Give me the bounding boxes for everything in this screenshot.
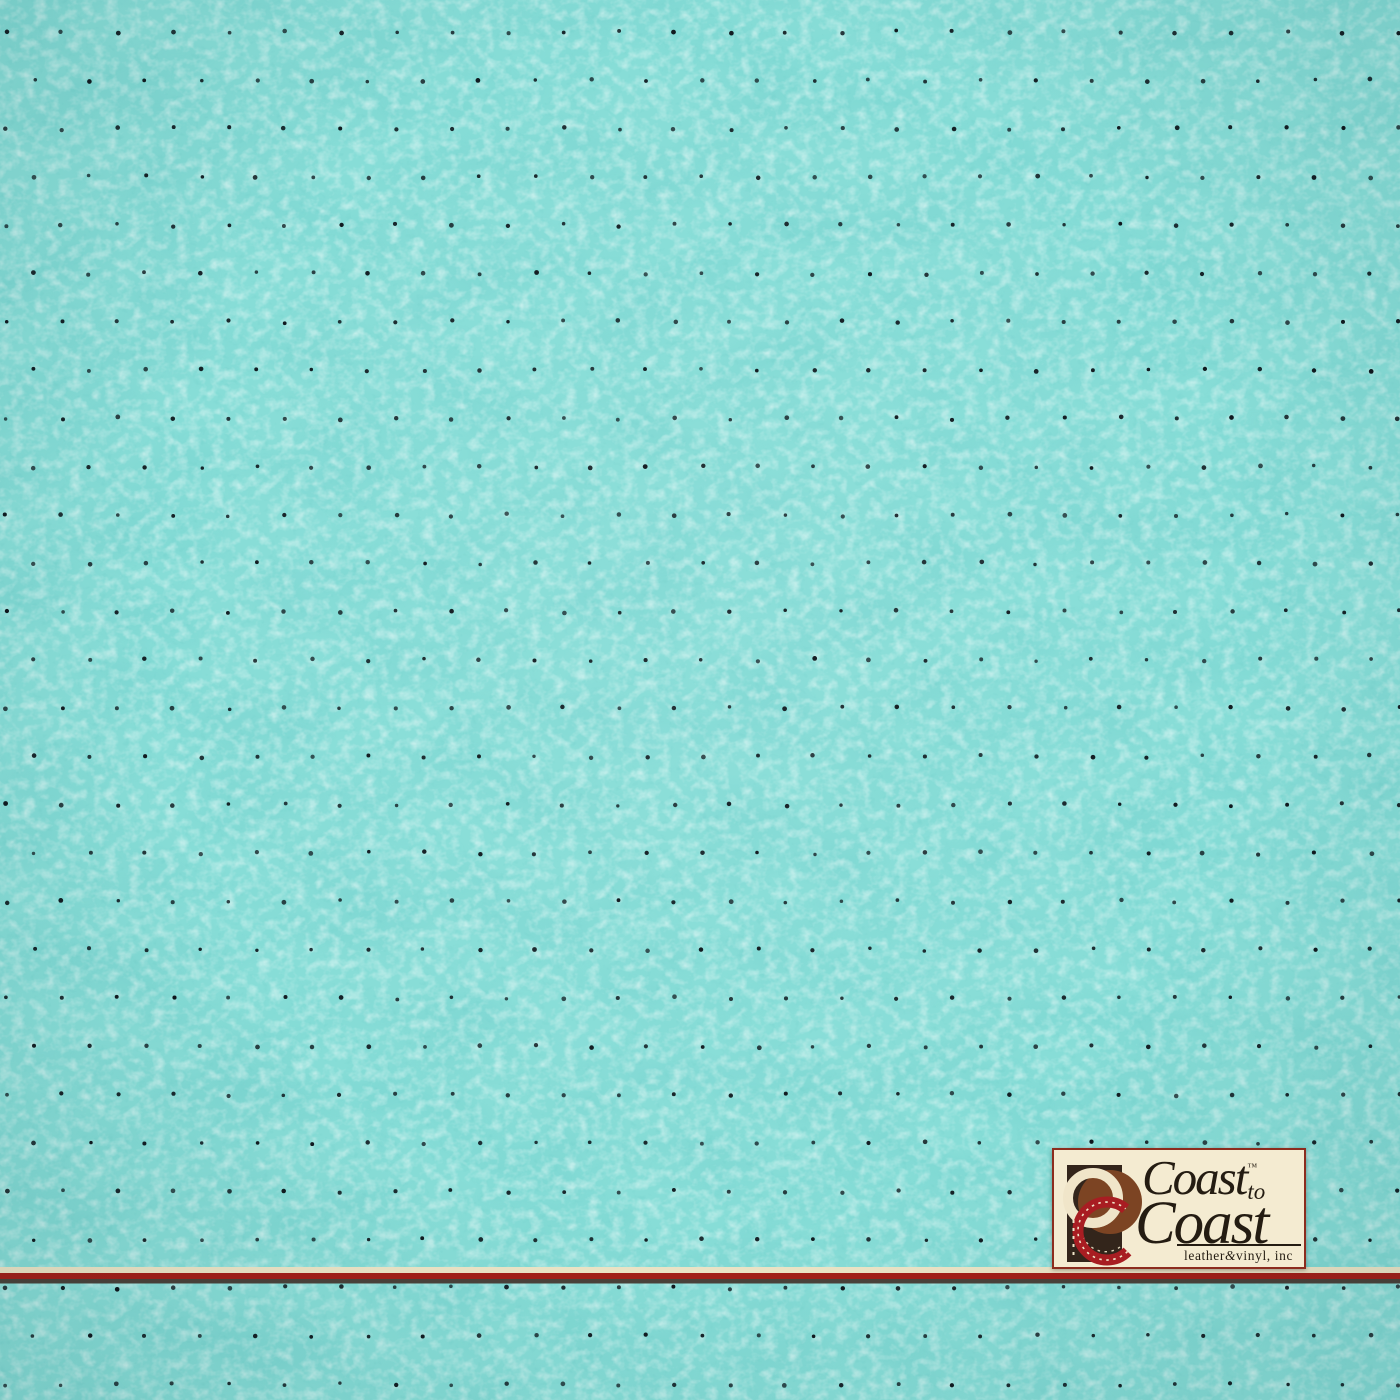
perforation-dot [757,1045,762,1050]
perforation-dot [700,1142,704,1146]
perforation-dot [116,31,121,36]
perforation-dot [644,79,648,83]
perforation-dot [1340,513,1344,517]
perforation-dot [423,465,427,469]
perforation-dot [561,996,566,1001]
perforation-dot [1256,754,1261,759]
perforation-dot [562,31,566,35]
perforation-dot [1145,658,1148,661]
perforation-dot [532,852,536,856]
perforation-dot [1034,948,1039,953]
perforation-dot [1172,31,1177,36]
perforation-dot [478,1237,483,1242]
perforation-dot [449,514,453,518]
perforation-dot [309,79,314,84]
perforation-dot [1091,368,1095,372]
perforation-dot [1147,368,1151,372]
perforation-dot [142,851,146,855]
perforation-dot [309,1335,313,1339]
perforation-dot [811,1045,814,1048]
perforation-dot [1034,78,1038,82]
perforation-dot [1312,464,1315,467]
perforation-dot [420,1236,424,1240]
perforation-dot [1313,562,1318,567]
perforation-dot [89,851,93,855]
perforation-dot [88,562,93,567]
perforation-dot [923,949,927,953]
perforation-dot [701,464,705,468]
perforation-dot [1341,320,1345,324]
perforation-dot [674,320,679,325]
perforation-dot [1005,416,1009,420]
perforation-dot [506,224,510,228]
perforation-dot [729,418,732,421]
perforation-dot [1173,995,1177,999]
perforation-dot [533,560,537,564]
perforation-dot [61,610,65,614]
perforation-dot [1256,79,1260,83]
perforation-dot [897,223,901,227]
perforation-dot [897,1382,901,1386]
perforation-dot [950,1191,954,1195]
perforation-dot [88,658,92,662]
perforation-dot [1090,271,1094,275]
logo-tagline-leather: leather [1184,1248,1225,1263]
perforation-dot [1062,223,1065,226]
perforation-dot [950,1091,954,1095]
perforation-dot [227,125,231,129]
perforation-dot [282,900,287,905]
perforation-dot [1341,416,1346,421]
perforation-dot [618,128,622,132]
perforation-dot [896,804,900,808]
perforation-dot [562,611,567,616]
perforation-dot [87,79,92,84]
perforation-dot [1369,369,1374,374]
perforation-dot [115,995,119,999]
perforation-dot [1006,222,1011,227]
perforation-dot [253,1334,258,1339]
perforation-dot [950,418,954,422]
perforation-dot [532,367,536,371]
perforation-dot [1174,1094,1179,1099]
perforation-dot [616,224,620,228]
perforation-dot [1229,804,1233,808]
perforation-dot [784,222,789,227]
perforation-dot [1061,1092,1065,1096]
perforation-dot [281,1189,286,1194]
logo-text-block: Coast ™ to Coast leather&vinyl, inc [1054,1150,1304,1267]
perforation-dot [729,1383,733,1387]
perforation-dot [782,1383,787,1388]
perforation-dot [365,271,370,276]
perforation-dot [813,368,817,372]
perforation-dot [838,1091,842,1095]
perforation-dot [449,223,454,228]
perforation-dot [312,270,316,274]
perforation-dot [978,174,982,178]
perforation-dot [61,319,65,323]
perforation-dot [643,367,647,371]
perforation-dot [561,1382,566,1387]
perforation-dot [1367,753,1371,757]
perforation-dot [256,755,260,759]
perforation-dot [254,367,258,371]
perforation-dot [671,30,676,35]
perforation-dot [366,948,370,952]
perforation-dot [339,223,343,227]
perforation-dot [5,1093,9,1097]
perforation-dot [783,31,787,35]
perforation-dot [783,609,787,613]
perforation-dot [115,125,120,130]
perforation-dot [338,320,342,324]
perforation-dot [699,947,703,951]
perforation-dot [1005,1285,1009,1289]
perforation-dot [756,659,760,663]
perforation-dot [1258,464,1263,469]
perforation-dot [923,850,928,855]
perforation-dot [840,899,844,903]
perforation-dot [1202,659,1206,663]
perforation-dot [88,1333,92,1337]
perforation-dot [1284,125,1288,129]
perforation-dot [1257,1044,1261,1048]
perforation-dot [115,415,120,420]
perforation-dot [951,803,955,807]
perforation-dot [281,609,285,613]
perforation-dot [701,1334,705,1338]
perforation-dot [1173,1382,1177,1386]
perforation-dot [672,994,677,999]
perforation-dot [561,318,565,322]
perforation-dot [142,1141,146,1145]
perforation-dot [117,1092,121,1096]
perforation-dot [1230,513,1234,517]
perforation-dot [1090,560,1094,564]
perforation-dot [755,1237,759,1241]
perforation-dot [198,948,201,951]
perforation-dot [617,1093,621,1097]
perforation-dot [784,996,788,1000]
perforation-dot [811,464,815,468]
perforation-dot [756,176,761,181]
perforation-dot [1035,466,1039,470]
perforation-dot [255,850,259,854]
perforation-dot [507,899,511,903]
perforation-dot [699,1236,704,1241]
perforation-dot [310,368,313,371]
perforation-dot [645,851,649,855]
perforation-dot [896,1092,900,1096]
perforation-dot [253,659,257,663]
perforation-dot [866,560,870,564]
perforation-dot [367,1238,370,1241]
perforation-dot [32,852,35,855]
perforation-dot [1341,223,1346,228]
perforation-dot [1201,1334,1205,1338]
perforation-dot [839,416,843,420]
perforation-dot [755,561,760,566]
perforation-dot [840,996,843,999]
perforation-dot [421,176,426,181]
perforation-dot [172,125,176,129]
perforation-dot [1033,1044,1038,1049]
perforation-dot [421,271,426,276]
perforation-dot [1286,901,1290,905]
perforation-dot [338,126,342,130]
perforation-dot [478,948,482,952]
perforation-dot [87,369,91,373]
perforation-dot [1089,174,1093,178]
perforation-dot [1230,1093,1235,1098]
perforation-dot [504,1285,509,1290]
perforation-dot [1034,754,1038,758]
perforation-dot [170,1381,174,1385]
perforation-dot [839,609,842,612]
perforation-dot [646,561,650,565]
perforation-dot [338,610,343,615]
perforation-dot [1174,705,1178,709]
perforation-dot [1203,560,1208,565]
perforation-dot [727,1190,731,1194]
perforation-dot [838,222,842,226]
perforation-dot [1147,947,1151,951]
perforation-dot [755,78,759,82]
perforation-dot [115,610,119,614]
perforation-dot [866,1334,870,1338]
perforation-dot [534,1141,537,1144]
perforation-dot [1201,948,1206,953]
perforation-dot [1256,853,1260,857]
perforation-dot [5,30,10,35]
perforation-dot [506,705,511,710]
logo-tagline: leather&vinyl, inc [1184,1248,1293,1264]
perforation-dot [729,899,734,904]
perforation-dot [506,802,510,806]
perforation-dot [5,1189,10,1194]
perforation-dot [896,1188,900,1192]
perforation-dot [1368,176,1373,181]
perforation-dot [5,320,9,324]
perforation-dot [171,1285,176,1290]
perforation-dot [562,222,566,226]
perforation-dot [1285,223,1289,227]
perforation-dot [589,1237,593,1241]
perforation-dot [311,176,315,180]
perforation-dot [1203,367,1207,371]
perforation-dot [256,464,260,468]
perforation-dot [1118,1384,1122,1388]
perforation-dot [978,1334,982,1338]
perforation-dot [699,658,703,662]
perforation-dot [925,1239,928,1242]
perforation-dot [1340,801,1344,805]
perforation-dot [784,901,788,905]
perforation-dot [922,174,926,178]
perforation-dot [950,319,954,323]
perforation-dot [727,320,731,324]
perforation-dot [924,1045,928,1049]
perforation-dot [283,321,287,325]
perforation-dot [199,367,204,372]
perforation-dot [312,1237,316,1241]
perforation-dot [784,513,787,516]
perforation-dot [923,368,927,372]
perforation-dot [810,753,815,758]
perforation-dot [450,996,454,1000]
perforation-dot [1202,1043,1207,1048]
perforation-dot [59,803,64,808]
perforation-dot [1064,706,1068,710]
perforation-dot [3,706,8,711]
perforation-dot [282,705,287,710]
perforation-dot [1035,1332,1039,1336]
perforation-dot [143,367,148,372]
perforation-dot [1062,995,1066,999]
perforation-dot [895,320,899,324]
perforation-dot [366,465,371,470]
perforation-dot [1369,1044,1373,1048]
perforation-dot [1342,1286,1346,1290]
perforation-dot [200,560,204,564]
perforation-dot [310,755,314,759]
perforation-dot [423,1045,427,1049]
perforation-dot [534,270,539,275]
perforation-dot [198,1334,202,1338]
perforation-dot [367,850,371,854]
perforation-dot [671,127,675,131]
perforation-dot [1229,415,1234,420]
perforation-dot [896,898,900,902]
perforation-dot [561,514,565,518]
perforation-dot [865,464,870,469]
perforation-dot [1145,1140,1149,1144]
perforation-dot [952,127,957,132]
perforation-dot [810,562,814,566]
perforation-dot [896,1286,901,1291]
perforation-dot [644,658,648,662]
perforation-dot [395,513,399,517]
perforation-dot [1061,127,1065,131]
perforation-dot [4,995,8,999]
perforation-dot [1312,368,1316,372]
perforation-dot [671,609,676,614]
perforation-dot [923,80,927,84]
perforation-dot [58,898,63,903]
perforation-dot [505,997,508,1000]
perforation-dot [1118,802,1121,805]
perforation-dot [1174,514,1178,518]
perforation-dot [199,852,203,856]
perforation-dot [477,368,482,373]
perforation-dot [283,417,287,421]
perforation-dot [616,996,620,1000]
perforation-dot [1341,126,1345,130]
perforation-dot [1174,1286,1178,1290]
perforation-dot [813,79,817,83]
perforation-dot [589,1045,594,1050]
perforation-dot [1175,416,1179,420]
perforation-dot [1119,415,1124,420]
perforation-dot [1063,415,1067,419]
perforation-dot [1118,514,1122,518]
perforation-dot [977,948,981,952]
perforation-dot [253,175,258,180]
logo-rule [1177,1244,1301,1246]
perforation-dot [1285,1093,1289,1097]
perforation-dot [87,174,91,178]
perforation-dot [868,272,872,276]
perforation-dot [171,224,175,228]
perforation-dot [1173,803,1177,807]
perforation-dot [170,608,175,613]
perforation-dot [255,1238,259,1242]
perforation-dot [952,1286,956,1290]
perforation-dot [255,1045,260,1050]
perforation-dot [394,127,398,131]
perforation-dot [87,755,91,759]
perforation-dot [504,511,508,515]
perforation-dot [1117,320,1121,324]
perforation-dot [1370,851,1375,856]
perforation-dot [728,705,731,708]
perforation-dot [227,1094,231,1098]
perforation-dot [700,271,704,275]
perforation-dot [61,1188,65,1192]
perforation-dot [617,512,621,516]
perforation-dot [895,705,900,710]
perforation-dot [978,849,983,854]
perforation-dot [338,513,342,517]
perforation-dot [310,657,314,661]
perforation-dot [894,29,898,33]
perforation-dot [701,1045,705,1049]
perforation-dot [1256,1333,1260,1337]
perforation-dot [226,996,230,1000]
perforation-dot [143,1238,147,1242]
perforation-dot [730,128,734,132]
perforation-dot [476,78,481,83]
perforation-dot [227,1189,232,1194]
perforation-dot [393,1189,397,1193]
perforation-dot [367,176,371,180]
perforation-dot [394,609,398,613]
perforation-dot [58,30,62,34]
perforation-dot [448,1188,452,1192]
perforation-dot [477,174,481,178]
perforation-dot [562,899,567,904]
perforation-dot [784,415,789,420]
perforation-dot [366,80,370,84]
perforation-dot [504,608,508,612]
perforation-dot [1200,851,1205,856]
perforation-dot [1285,512,1288,515]
perforation-dot [534,1043,538,1047]
perforation-dot [1063,1383,1067,1387]
perforation-dot [1312,850,1316,854]
perforation-dot [86,273,90,277]
perforation-dot [1340,996,1344,1000]
perforation-dot [226,611,230,615]
perforation-dot [700,78,704,82]
perforation-dot [811,1237,815,1241]
perforation-dot [727,802,732,807]
perforation-dot [394,416,398,420]
perforation-dot [1172,900,1176,904]
perforation-dot [1230,319,1235,324]
perforation-dot [672,1383,676,1387]
